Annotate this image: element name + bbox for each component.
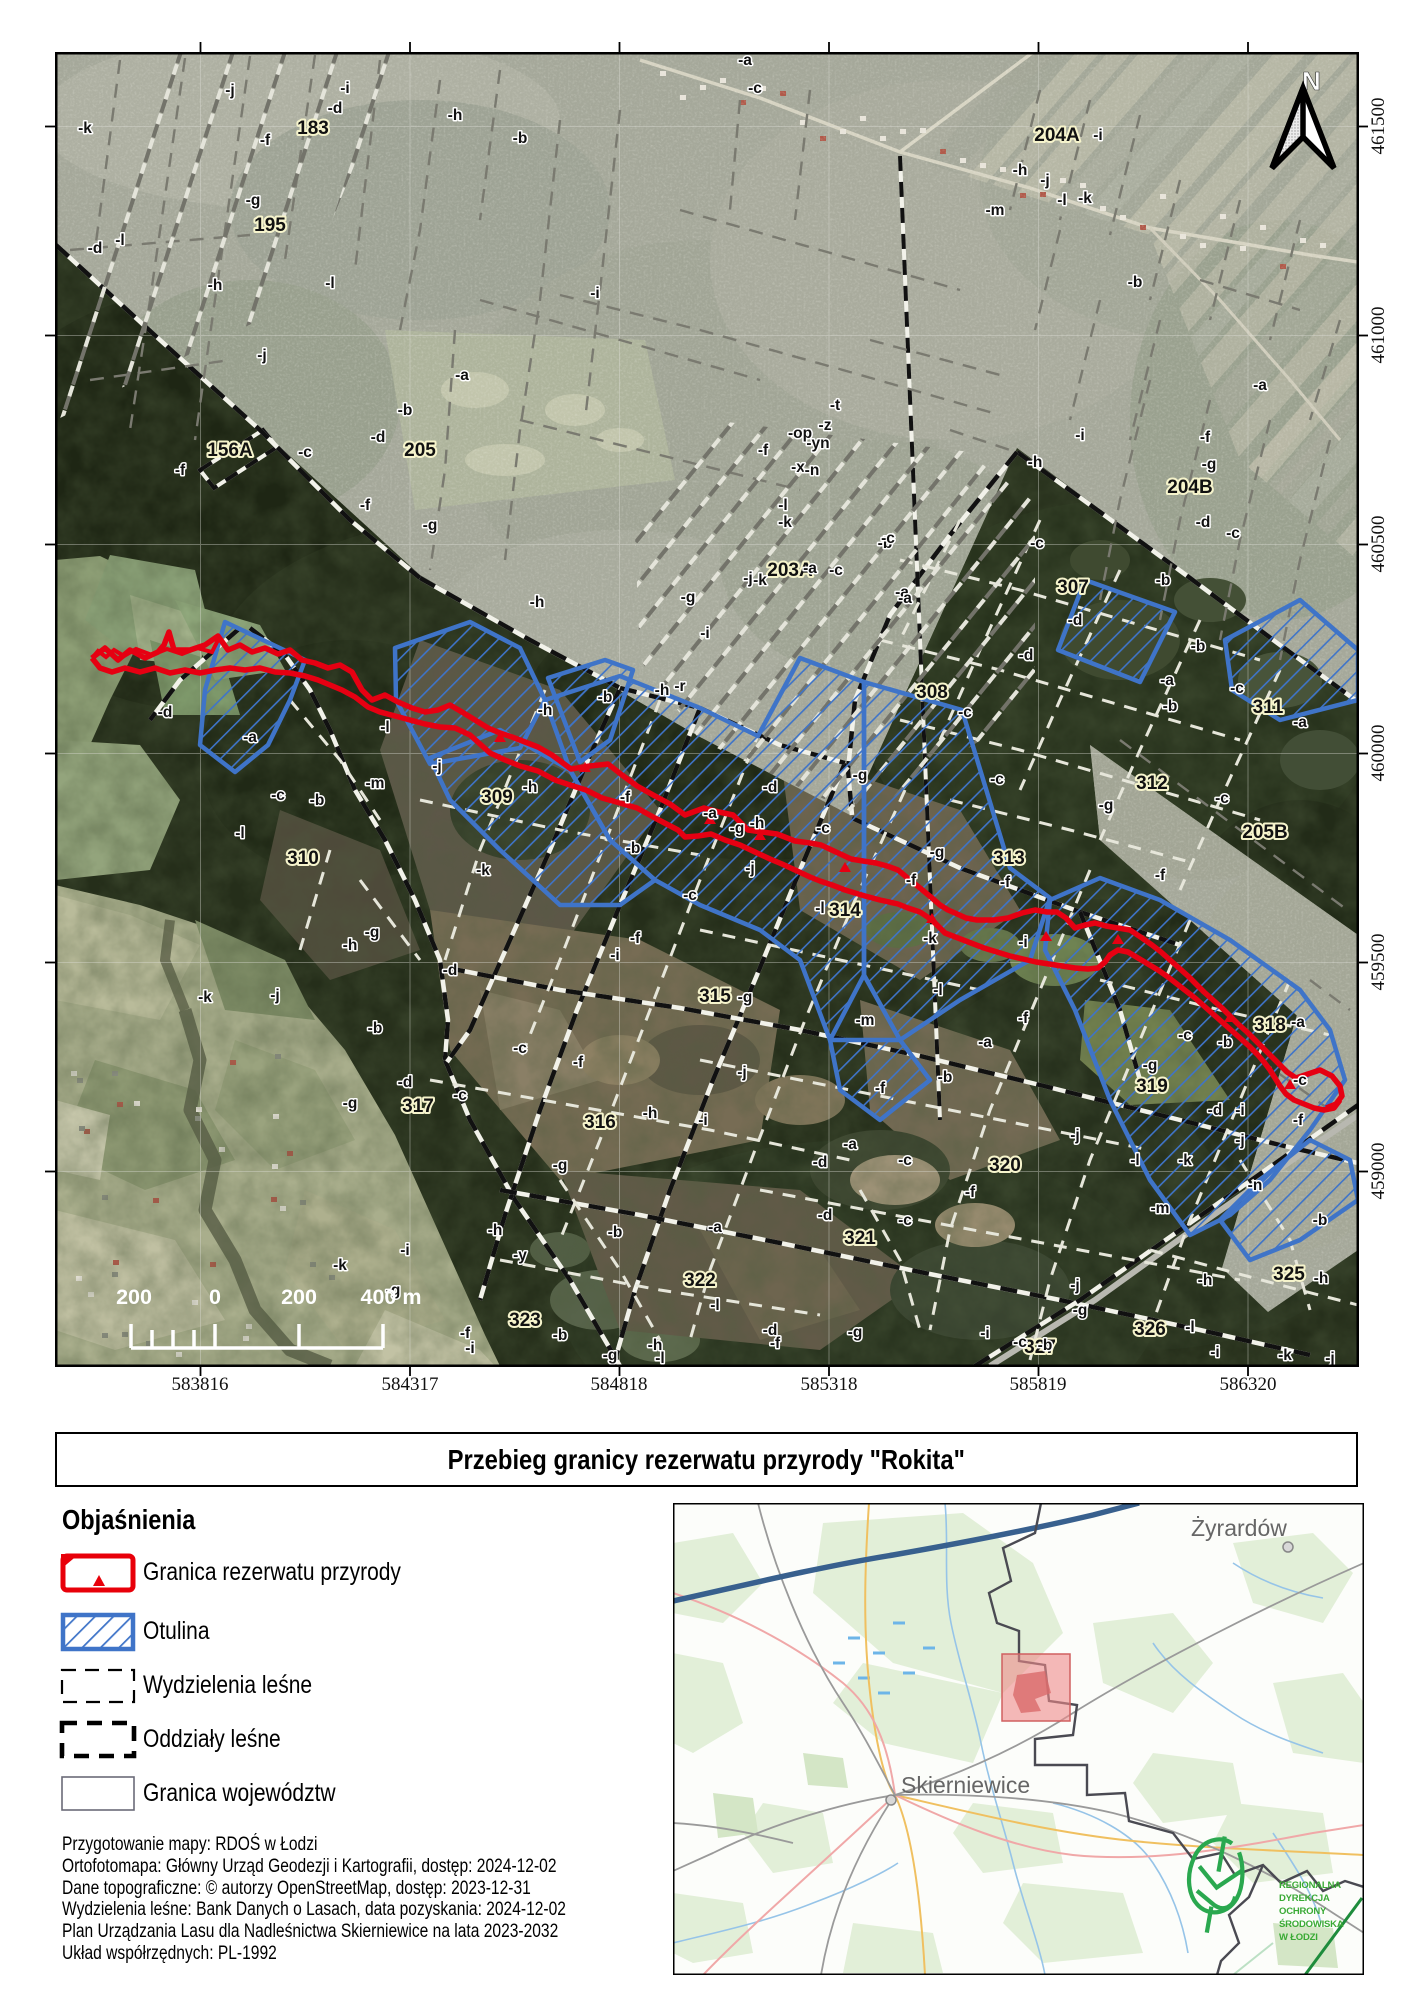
svg-text:OCHRONY: OCHRONY xyxy=(1279,1906,1327,1917)
svg-text:ŚRODOWISKA: ŚRODOWISKA xyxy=(1279,1918,1344,1930)
svg-text:Żyrardów: Żyrardów xyxy=(1191,1515,1287,1541)
svg-text:Skierniewice: Skierniewice xyxy=(901,1772,1030,1798)
svg-text:REGIONALNA: REGIONALNA xyxy=(1279,1880,1341,1891)
svg-text:DYREKCJA: DYREKCJA xyxy=(1279,1893,1330,1904)
svg-text:W ŁODZI: W ŁODZI xyxy=(1279,1932,1318,1943)
